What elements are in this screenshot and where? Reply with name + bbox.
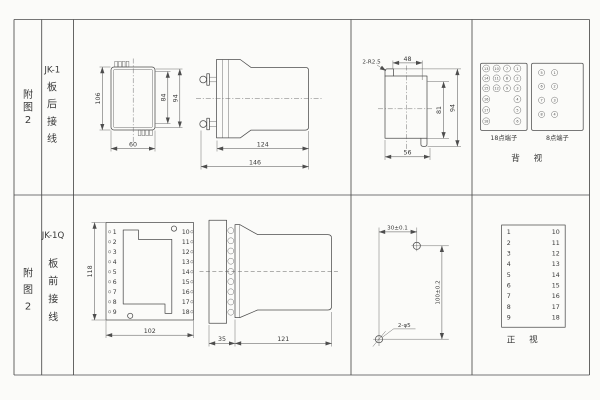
dim-124-label: 124 — [257, 141, 269, 148]
terminal-pin: 18 — [484, 120, 488, 124]
front-terminal-label: 18 — [182, 309, 190, 316]
jk1q-terminal-table: 1 2 3 4 5 6 7 8 9 10 11 12 13 14 15 16 1… — [502, 225, 566, 345]
table-terminal: 9 — [507, 314, 511, 321]
dim-60-label: 60 — [129, 141, 137, 148]
table-terminal: 1 — [507, 229, 511, 236]
front-terminal-label: 3 — [113, 249, 117, 256]
terminal-pin: 12 — [494, 87, 498, 91]
terminal-pin: 5 — [541, 71, 543, 75]
technical-drawing-canvas: 附 图 2 JK-1 板 后 接 线 附 图 2 JK-1Q 板 前 接 线 — [0, 0, 600, 400]
dim-106-label: 106 — [95, 92, 102, 104]
table-terminal: 5 — [507, 272, 511, 279]
terminal-pin: 8 — [541, 113, 543, 117]
front-terminal-label: 16 — [182, 289, 190, 296]
table-terminal: 15 — [552, 283, 560, 290]
mounting-screw — [200, 118, 217, 129]
dim-56-label: 56 — [403, 150, 411, 157]
fig-label-char: 图 — [23, 284, 33, 296]
table-terminal: 14 — [552, 272, 560, 279]
drawing-sheet: 附 图 2 JK-1 板 后 接 线 附 图 2 JK-1Q 板 前 接 线 — [0, 0, 600, 400]
terminal-pin: 7 — [541, 99, 543, 103]
jk1q-front-view-drawing: 1 2 3 4 5 6 7 8 9 10 11 12 13 14 15 16 1… — [87, 223, 193, 339]
hole-note-label: 2-φ5 — [398, 323, 411, 329]
front-terminal-label: 10 — [182, 229, 190, 236]
dim-84-label: 84 — [160, 93, 167, 101]
table-terminal: 18 — [552, 314, 560, 321]
table-terminal: 17 — [552, 304, 560, 311]
terminal-pin: 7 — [506, 67, 508, 71]
fig-label-char: 附 — [23, 88, 33, 101]
dim-146-label: 146 — [249, 159, 261, 166]
dim-35-label: 35 — [218, 336, 226, 343]
fig-label-char: 2 — [25, 301, 31, 312]
jk1-profile-view-drawing: 2-R2.5 48 81 94 56 — [362, 56, 461, 160]
terminal-block18-label: 18点端子 — [490, 133, 517, 142]
front-terminal-label: 17 — [182, 299, 190, 306]
table-terminal: 11 — [552, 240, 560, 247]
wiring-char: 线 — [47, 132, 57, 145]
terminal-block8-label: 8点端子 — [546, 133, 569, 142]
terminal-pin: 11 — [494, 77, 498, 81]
dim-100-label: 100±0.2 — [435, 280, 441, 304]
terminal-pin: 17 — [484, 108, 488, 112]
row2-labels: 附 图 2 JK-1Q 板 前 接 线 — [23, 231, 65, 323]
front-terminal-label: 13 — [182, 259, 190, 266]
front-terminal-label: 9 — [113, 309, 117, 316]
jk1-side-view-drawing: 124 146 — [196, 60, 323, 170]
dim-30-label: 30±0.1 — [387, 226, 408, 232]
front-view-label: 正 视 — [507, 333, 543, 345]
mounting-screw — [200, 74, 217, 85]
table-terminal: 16 — [552, 293, 560, 300]
model-label-jk1q: JK-1Q — [41, 231, 65, 241]
terminal-pin: 16 — [484, 98, 488, 102]
table-terminal: 4 — [507, 261, 511, 268]
terminal-pin: 14 — [484, 77, 488, 81]
dim-118-label: 118 — [87, 265, 94, 277]
jk1-rear-terminal-blocks: 13 14 15 16 17 18 10 11 12 7 8 9 1 2 3 4… — [481, 63, 584, 164]
table-terminal: 12 — [552, 251, 560, 258]
terminal-pin: 8 — [506, 77, 508, 81]
wiring-char: 接 — [47, 115, 57, 128]
table-terminal: 8 — [507, 304, 511, 311]
wiring-char: 接 — [48, 292, 58, 305]
fig-label-char: 附 — [23, 266, 33, 279]
mounting-hole — [171, 226, 176, 231]
front-terminal-label: 2 — [113, 239, 117, 246]
front-terminal-label: 7 — [113, 289, 117, 296]
terminal-pin: 2 — [516, 77, 518, 81]
terminal-pin: 3 — [554, 99, 556, 103]
front-terminal-label: 6 — [113, 279, 117, 286]
fig-label-char: 图 — [23, 102, 33, 114]
jk1-rear-view-drawing: 106 84 94 60 — [95, 59, 183, 152]
terminal-pin: 6 — [541, 85, 543, 89]
dim-94b-label: 94 — [450, 104, 457, 112]
front-terminal-label: 14 — [182, 269, 190, 276]
front-terminal-label: 4 — [113, 259, 117, 266]
model-label-jk1: JK-1 — [43, 66, 60, 76]
table-terminal: 13 — [552, 261, 560, 268]
table-terminal: 10 — [552, 229, 560, 236]
front-terminal-label: 8 — [113, 299, 117, 306]
front-terminal-label: 11 — [182, 239, 190, 246]
dim-121-label: 121 — [277, 336, 289, 343]
front-terminal-label: 1 — [113, 229, 117, 236]
fig-label-char: 2 — [25, 115, 31, 126]
front-terminal-label: 5 — [113, 269, 117, 276]
terminal-pin: 2 — [554, 85, 556, 89]
radius-note-label: 2-R2.5 — [362, 59, 381, 65]
wiring-char: 前 — [48, 275, 58, 288]
mounting-hole — [128, 313, 133, 318]
table-terminal: 7 — [507, 293, 511, 300]
wiring-char: 后 — [47, 99, 57, 111]
terminal-pin: 4 — [516, 98, 518, 102]
terminal-pin: 3 — [516, 87, 518, 91]
front-terminal-label: 12 — [182, 249, 190, 256]
dim-48-label: 48 — [403, 56, 411, 63]
wiring-char: 板 — [47, 80, 57, 93]
terminal-pin: 9 — [506, 87, 508, 91]
terminal-pin: 5 — [516, 108, 518, 112]
terminal-pin: 1 — [516, 67, 518, 71]
terminal-pin: 6 — [516, 120, 518, 124]
dim-94-label: 94 — [172, 94, 179, 102]
dim-81-label: 81 — [436, 106, 443, 114]
terminal-pin: 10 — [494, 67, 498, 71]
table-terminal: 6 — [507, 283, 511, 290]
terminal-pin: 1 — [554, 71, 556, 75]
wiring-char: 线 — [48, 310, 58, 323]
back-view-label: 背 视 — [511, 152, 547, 164]
table-terminal: 2 — [507, 240, 511, 247]
table-terminal: 3 — [507, 251, 511, 258]
terminal-pin: 13 — [484, 67, 488, 71]
front-terminal-label: 15 — [182, 279, 190, 286]
table-grid — [14, 20, 590, 376]
terminal-pin: 15 — [484, 87, 488, 91]
jk1q-drill-template-drawing: 30±0.1 100±0.2 2-φ5 — [373, 226, 449, 347]
dim-102-label: 102 — [144, 328, 156, 335]
terminal-pin: 4 — [554, 113, 556, 117]
jk1q-side-view-drawing: 35 121 — [200, 220, 339, 346]
wiring-char: 板 — [48, 257, 58, 270]
